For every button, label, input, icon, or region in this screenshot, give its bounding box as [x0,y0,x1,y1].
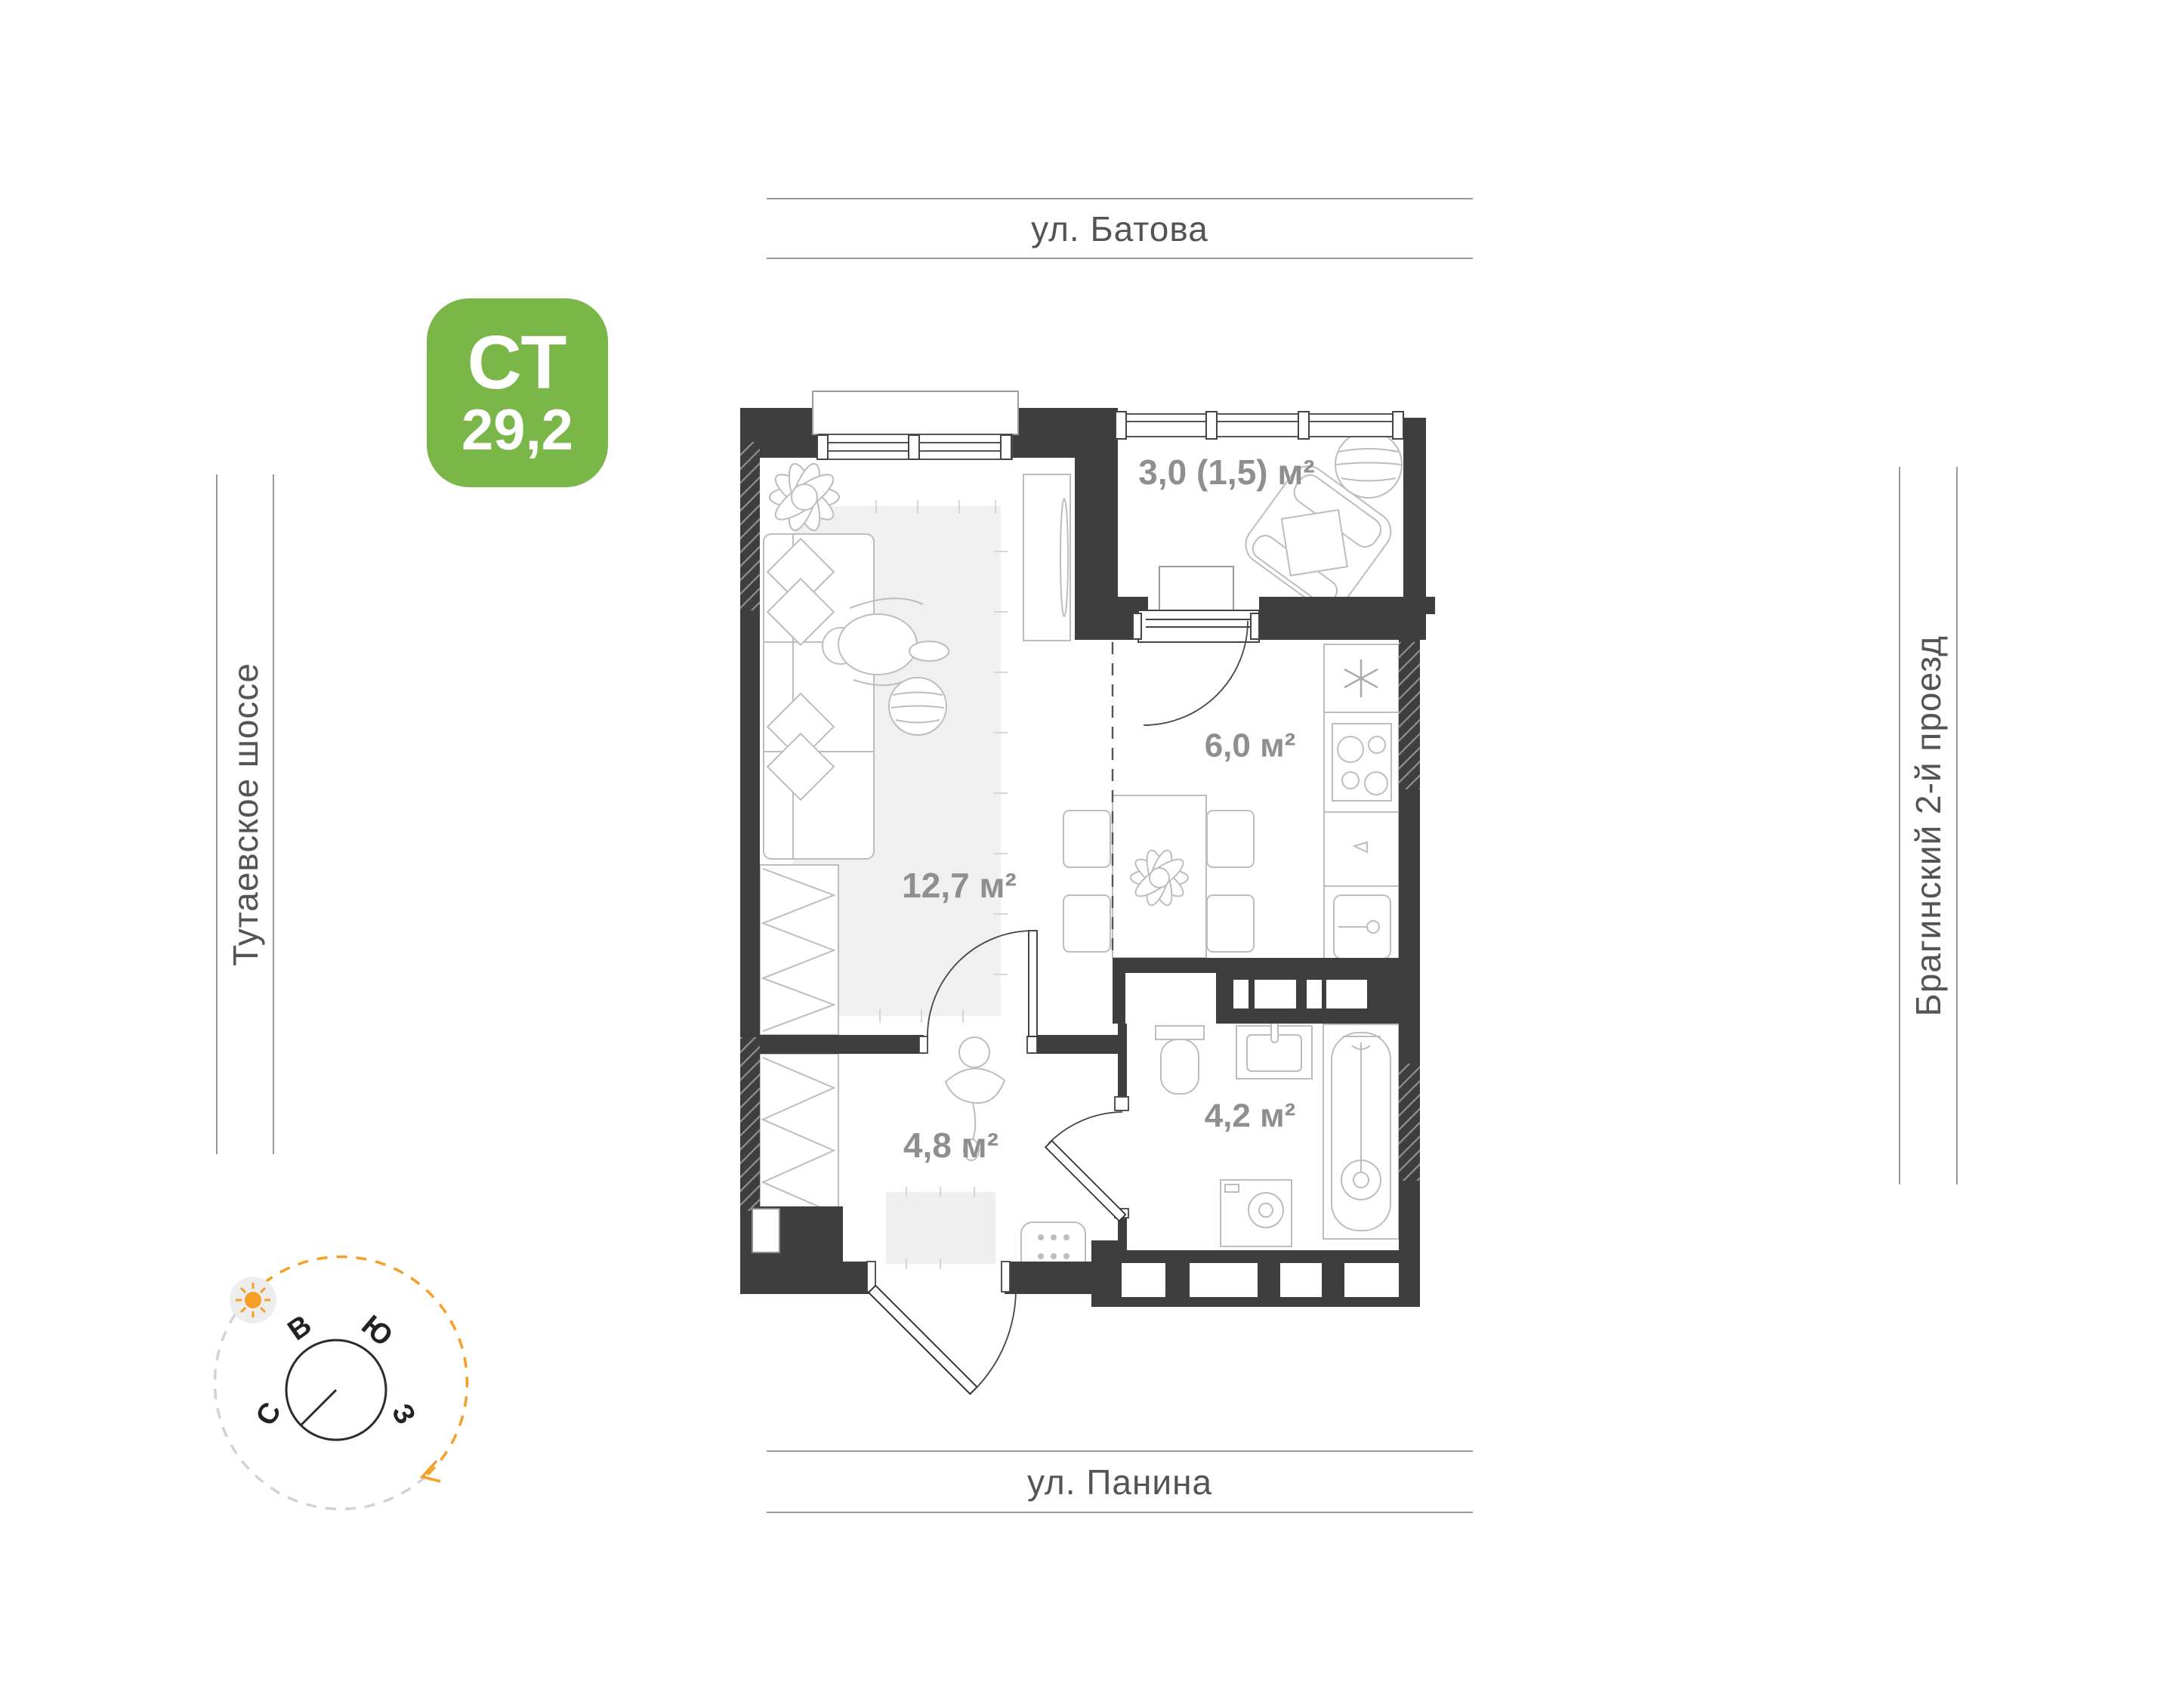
balcony-area-label: 3,0 (1,5) м² [1138,452,1314,492]
street-bottom: ул. Панина [767,1450,1473,1513]
compass-west-label: З [385,1398,421,1430]
street-top: ул. Батова [767,198,1473,259]
living-area-label: 12,7 м² [902,866,1017,905]
floor-plan-page: ул. Батова ул. Панина Тутаевское шоссе Б… [0,0,2176,1708]
balcony-side-table [1335,431,1402,498]
apartment-area-value: 29,2 [461,400,573,461]
street-top-label: ул. Батова [1031,208,1208,249]
street-left: Тутаевское шоссе [216,474,274,1154]
bathroom-door [1045,1097,1128,1221]
apartment-type-label: СТ [468,325,568,400]
apartment-type-badge: СТ 29,2 [427,298,608,487]
dining-table [1063,795,1254,958]
entry-door [867,1262,1016,1394]
washing-machine [1221,1180,1292,1246]
bathtub [1323,1024,1399,1239]
ball-pouf [889,678,946,735]
street-right-label: Брагинский 2-й проезд [1908,635,1949,1016]
stove-icon [1332,724,1391,801]
street-bottom-label: ул. Панина [1027,1462,1212,1503]
street-left-label: Тутаевское шоссе [225,663,266,966]
sun-icon [230,1277,276,1323]
balcony-glazing [1116,412,1403,439]
bath-sink [1236,1021,1312,1079]
sofa [764,534,874,859]
floor-plan: 3,0 (1,5) м² 6,0 м² 12,7 м² 4,8 м² 4,2 м… [740,378,1435,1447]
compass-north-label: С [250,1398,288,1432]
living-closet [760,865,838,1035]
balcony-door [1133,567,1259,725]
compass-east-label: В [282,1309,318,1347]
kitchen-counter [1324,644,1399,967]
living-window [813,391,1018,459]
entry-doormat [886,1187,995,1269]
hallway-area-label: 4,8 м² [903,1126,998,1165]
compass: В Ю С З [193,1243,495,1537]
toilet [1156,1026,1204,1094]
kitchen-sink-icon [1334,895,1390,959]
tv-unit [1023,474,1070,641]
bathroom-area-label: 4,2 м² [1205,1098,1296,1135]
kitchen-area-label: 6,0 м² [1205,727,1296,764]
street-right: Брагинский 2-й проезд [1899,467,1958,1184]
